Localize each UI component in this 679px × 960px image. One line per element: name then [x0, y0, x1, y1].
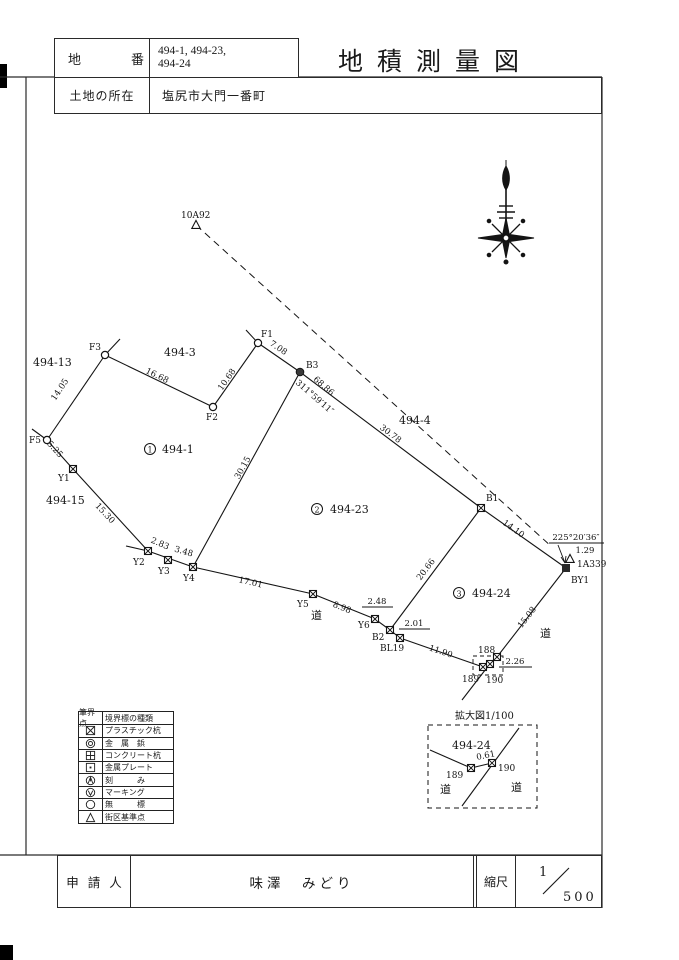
legend-label: コンクリート杭: [103, 750, 173, 761]
legend-label: 金属プレート: [103, 762, 173, 773]
dist-f3f2: 16.68: [144, 366, 170, 386]
dist-f2f1: 10.68: [216, 367, 238, 393]
lot-number-value: 494-1, 494-23, 494-24: [150, 39, 298, 77]
legend-label: 刻 み: [103, 774, 173, 785]
dist-y6b2: 2.48: [368, 597, 387, 607]
marker-y6: [372, 616, 379, 623]
dist-y4y5: 17.01: [237, 575, 263, 590]
marker-y1: [70, 466, 77, 473]
road-label-east: 道: [540, 626, 551, 640]
dist-y1y2: 15.30: [93, 501, 117, 526]
circle-icon: [79, 799, 103, 810]
dist-b2bl19: 2.01: [405, 619, 424, 629]
parcel-494-3: 494-3: [164, 346, 196, 359]
land-location-label: 土地の所在: [55, 78, 150, 113]
label-y6: Y6: [357, 621, 370, 631]
label-b2: B2: [372, 633, 384, 643]
label-bl19: BL19: [380, 644, 404, 654]
survey-sheet: 10A92 F3 F1 B3 F2 F5 Y1 Y2 Y3 Y4 Y5 Y6 B…: [0, 0, 679, 960]
legend-row: 街区基準点: [79, 810, 173, 822]
marker-190: [487, 661, 494, 668]
enlargement-label-189: 189: [446, 771, 463, 781]
applicant-box: 申請人 味澤 みどり 縮尺 1 500: [57, 855, 602, 908]
enlargement-road-right: 道: [511, 780, 522, 794]
legend-label: プラスチック杭: [103, 725, 173, 736]
page-title: 地積測量図: [338, 42, 533, 78]
parcel-labels: 494-13 494-3 494-15 494-4 494-1 494-23 4…: [33, 346, 551, 640]
marker-10a92: [192, 220, 200, 228]
marker-b3: [296, 368, 304, 376]
parcel-494-24: 494-24: [472, 587, 511, 600]
dist-bl19-189: 11.90: [427, 644, 453, 661]
label-y3: Y3: [157, 567, 170, 577]
enlargement-label-190: 190: [498, 764, 515, 774]
legend-table: 筆界点 境界標の種類 プラスチック杭 金 属 鋲 コンクリート杭 金属プレート …: [78, 711, 174, 824]
legend-row: 刻 み: [79, 773, 173, 785]
legend-header-marker-type: 境界標の種類: [103, 712, 173, 724]
label-by1: BY1: [571, 576, 589, 586]
legend-row: 金属プレート: [79, 761, 173, 773]
lot-number-line2: 494-24: [158, 58, 191, 71]
marker-b1: [478, 505, 485, 512]
label-b1: B1: [486, 494, 498, 504]
label-y1: Y1: [57, 474, 70, 484]
marker-f1: [254, 339, 261, 346]
marker-y3: [165, 557, 172, 564]
parcel-494-4: 494-4: [399, 414, 431, 427]
dist-188-190: 2.26: [506, 657, 525, 667]
marker-y2: [145, 548, 152, 555]
dist-y5y6: 8.98: [331, 600, 352, 616]
circle-check-icon: [79, 787, 103, 798]
land-location-value: 塩尻市大門一番町: [150, 78, 601, 113]
label-b3: B3: [306, 361, 319, 371]
marker-189: [480, 664, 487, 671]
marker-bl19: [397, 635, 404, 642]
enlargement-parcel: 494-24: [452, 739, 491, 752]
parcel-494-1: 494-1: [162, 443, 194, 456]
legend-header-boundary-point: 筆界点: [79, 712, 103, 724]
marker-f2: [209, 403, 216, 410]
legend-row: 無 標: [79, 798, 173, 810]
legend-header-row: 筆界点 境界標の種類: [79, 712, 173, 724]
marker-f3: [101, 351, 108, 358]
label-10a92: 10A92: [181, 211, 210, 221]
distance-labels: 16.68 10.68 7.08 14.05 5.25 15.30 2.83 3…: [44, 339, 599, 667]
bearing-by1: 225°20′36″: [552, 533, 599, 543]
dist-y2y3: 2.83: [149, 536, 170, 553]
legend-label: 金 属 鋲: [103, 738, 173, 749]
land-location-box: 土地の所在 塩尻市大門一番町: [54, 77, 602, 114]
legend-row: プラスチック杭: [79, 724, 173, 736]
square-cross-icon: [79, 750, 103, 761]
legend-label: 無 標: [103, 799, 173, 810]
point-markers: [43, 220, 574, 670]
marker-b2: [387, 627, 394, 634]
triangle-icon: [79, 811, 103, 822]
enlargement-figure: 拡大図1/100 494-24 0.61 189 190 道 道: [428, 709, 537, 808]
square-x-icon: [79, 725, 103, 736]
parcel-494-23: 494-23: [330, 503, 369, 516]
dist-by1-188: 15.08: [516, 605, 539, 630]
label-y5: Y5: [296, 600, 309, 610]
legend-row: マーキング: [79, 786, 173, 798]
legend-row: コンクリート杭: [79, 749, 173, 761]
label-1a339: 1A339: [577, 560, 607, 570]
road-label-south: 道: [311, 608, 322, 622]
label-f3: F3: [89, 343, 101, 353]
circled-2-text: 2: [314, 506, 319, 515]
parcel-494-13: 494-13: [33, 356, 72, 369]
scale-denominator: 500: [563, 890, 597, 905]
label-y2: Y2: [132, 558, 145, 568]
north-compass-icon: [478, 160, 534, 264]
dist-b1by1: 14.10: [500, 518, 526, 540]
parcel-494-15: 494-15: [46, 494, 85, 507]
double-circle-icon: [79, 738, 103, 749]
scale-value: 1 500: [515, 856, 601, 907]
legend-row: 金 属 鋲: [79, 737, 173, 749]
marker-y4: [190, 564, 197, 571]
label-f1: F1: [261, 330, 273, 340]
circled-3-text: 3: [456, 590, 461, 599]
square-dot-icon: [79, 762, 103, 773]
label-y4: Y4: [182, 574, 195, 584]
label-190: 190: [486, 676, 503, 686]
applicant-label: 申請人: [58, 856, 131, 907]
dist-y3y4: 3.48: [173, 545, 194, 560]
legend-label: 街区基準点: [103, 811, 173, 822]
enlargement-marker-189: [468, 765, 475, 772]
lot-number-box: 地番 494-1, 494-23, 494-24: [54, 38, 299, 78]
scale-numerator: 1: [539, 865, 547, 880]
circled-1-text: 1: [147, 446, 152, 455]
enlargement-road-left: 道: [440, 782, 451, 796]
enlargement-title: 拡大図1/100: [455, 709, 514, 722]
lot-number-label: 地番: [55, 39, 150, 77]
dist-f3f5: 14.05: [49, 377, 71, 403]
marker-y5: [310, 591, 317, 598]
dist-f1b3: 7.08: [267, 339, 288, 358]
lot-number-line1: 494-1, 494-23,: [158, 45, 226, 58]
dist-by1-1a339: 1.29: [576, 546, 595, 556]
reference-dashed-line: [196, 225, 552, 547]
legend-label: マーキング: [103, 787, 173, 798]
label-188: 188: [478, 646, 495, 656]
label-f5: F5: [29, 436, 41, 446]
label-f2: F2: [206, 413, 218, 423]
marker-1a339: [566, 554, 574, 562]
scale-label: 縮尺: [473, 856, 515, 907]
applicant-name: 味澤 みどり: [131, 856, 473, 907]
circle-notch-icon: [79, 774, 103, 785]
scale-fraction: 1 500: [517, 856, 601, 907]
dist-b3y4: 30.15: [233, 455, 254, 481]
marker-by1: [562, 564, 570, 572]
label-189: 189: [462, 675, 479, 685]
enlargement-marker-190: [489, 760, 496, 767]
